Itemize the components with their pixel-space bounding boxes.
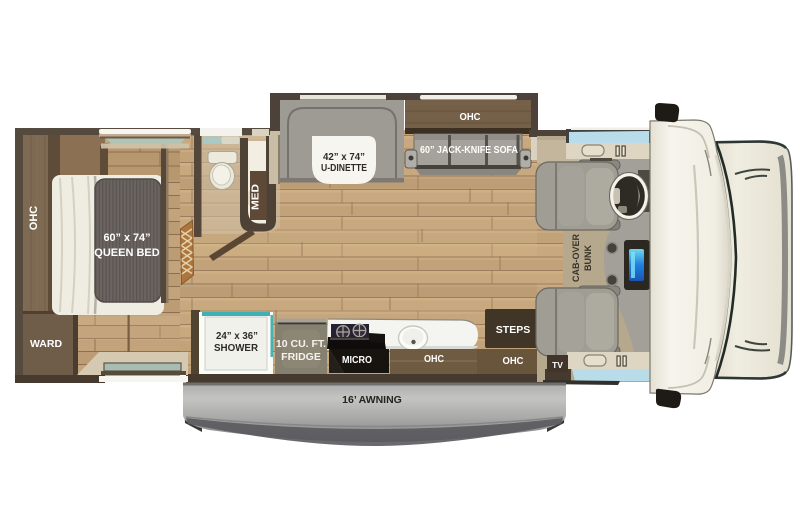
svg-text:STEPS: STEPS xyxy=(496,324,530,336)
svg-text:WARD: WARD xyxy=(30,338,62,350)
svg-text:OHC: OHC xyxy=(28,206,40,231)
svg-text:MED: MED xyxy=(250,184,262,210)
svg-text:FRIDGE: FRIDGE xyxy=(281,351,321,363)
svg-text:OHC: OHC xyxy=(503,355,524,367)
svg-text:SHOWER: SHOWER xyxy=(214,342,258,354)
svg-text:16’ AWNING: 16’ AWNING xyxy=(342,394,402,406)
svg-text:QUEEN BED: QUEEN BED xyxy=(94,247,159,259)
svg-text:U-DINETTE: U-DINETTE xyxy=(321,162,367,174)
svg-text:24” x 36”: 24” x 36” xyxy=(216,330,258,342)
svg-text:OHC: OHC xyxy=(460,111,481,123)
svg-text:TV: TV xyxy=(552,360,563,370)
svg-text:MICRO: MICRO xyxy=(342,354,372,366)
svg-text:BUNK: BUNK xyxy=(583,245,593,271)
svg-text:CAB-OVER: CAB-OVER xyxy=(571,234,581,283)
svg-text:OHC: OHC xyxy=(424,353,444,365)
svg-text:60” x 74”: 60” x 74” xyxy=(104,232,151,244)
svg-text:10 CU. FT.: 10 CU. FT. xyxy=(276,338,326,350)
svg-text:60” JACK-KNIFE SOFA: 60” JACK-KNIFE SOFA xyxy=(420,145,518,156)
